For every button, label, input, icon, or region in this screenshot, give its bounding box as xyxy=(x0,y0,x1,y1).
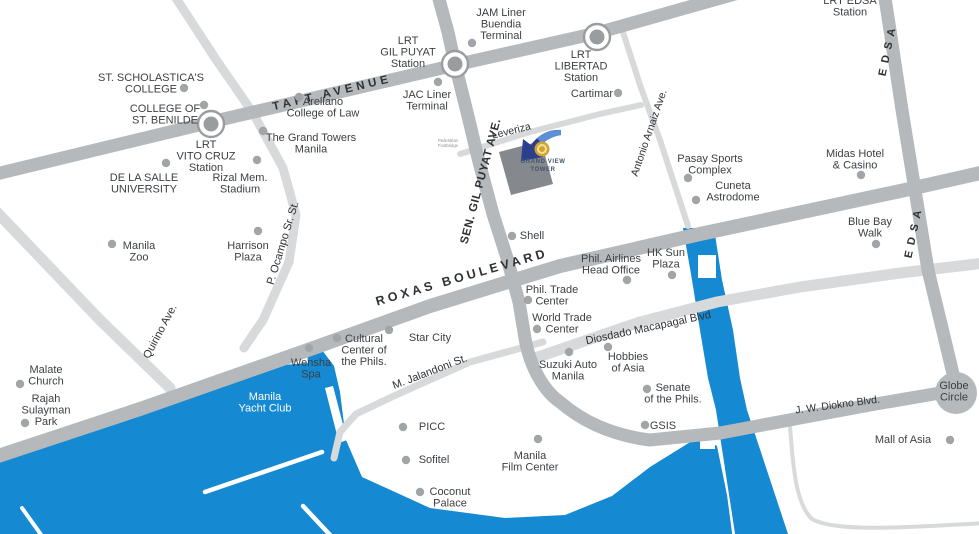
star-city-dot xyxy=(385,326,393,334)
hobbies-of-asia-dot xyxy=(604,343,612,351)
poi-gsis: GSIS xyxy=(641,420,676,432)
manila-zoo-dot xyxy=(108,240,116,248)
hobbies-of-asia-label: Hobbiesof Asia xyxy=(608,351,649,375)
lrt-libertad-station-label: LRTLIBERTADStation xyxy=(555,49,608,84)
poi-midas-hotel-casino: Midas Hotel& Casino xyxy=(826,148,884,179)
road-label-m-jalandoni-st: M. Jalandoni St. xyxy=(391,352,469,391)
cartimar-dot xyxy=(614,89,622,97)
poi-hobbies-of-asia: Hobbiesof Asia xyxy=(604,343,649,375)
manila-film-center-label: ManilaFilm Center xyxy=(502,450,559,474)
poi-harrison-plaza: HarrisonPlaza xyxy=(227,227,269,264)
poi-globe-circle: GlobeCircle xyxy=(939,380,968,404)
picc-label: PICC xyxy=(419,421,445,433)
college-of-st-benilde-label: COLLEGE OFST. BENILDE xyxy=(130,103,201,127)
rizal-mem-stadium-label: Rizal Mem.Stadium xyxy=(212,172,267,196)
channel-notch xyxy=(698,255,716,278)
gsis-dot xyxy=(641,421,649,429)
poi-hk-sun-plaza: HK SunPlaza xyxy=(647,247,685,279)
phil-trade-center-label: Phil. TradeCenter xyxy=(526,284,579,308)
poi-lrt-edsa-station: LRT EDSAStation xyxy=(823,0,877,19)
poi-manila-zoo: ManilaZoo xyxy=(108,240,156,264)
poi-senate-of-the-phils: Senateof the Phils. xyxy=(643,382,702,406)
phil-airlines-head-office-dot xyxy=(623,276,631,284)
coconut-palace-label: CoconutPalace xyxy=(430,486,471,510)
poi-blue-bay-walk: Blue BayWalk xyxy=(848,216,893,248)
blue-bay-walk-dot xyxy=(872,240,880,248)
pedestrian-footbridge-note-label: PedestrianFootbridge xyxy=(438,138,459,148)
sofitel-label: Sofitel xyxy=(419,454,450,466)
st-scholasticas-college-dot xyxy=(180,84,188,92)
sofitel-dot xyxy=(402,456,410,464)
poi-star-city: Star City xyxy=(385,326,452,344)
picc-dot xyxy=(399,423,407,431)
poi-rajah-sulayman-park: RajahSulaymanPark xyxy=(21,393,71,428)
cartimar-label: Cartimar xyxy=(571,88,614,100)
tower-gold-seal-icon xyxy=(535,142,550,157)
poi-lrt-vito-cruz-station: LRTVITO CRUZStation xyxy=(176,139,235,174)
de-la-salle-university-label: DE LA SALLEUNIVERSITY xyxy=(110,172,179,196)
midas-hotel-casino-dot xyxy=(857,171,865,179)
world-trade-center-label: World TradeCenter xyxy=(532,312,592,336)
vicinity-map-page: TAFT AVENUESEN. GIL PUYAT AVE.ROXAS BOUL… xyxy=(0,0,979,534)
jam-liner-buendia-terminal-label: JAM LinerBuendiaTerminal xyxy=(476,7,526,42)
shell-label: Shell xyxy=(520,230,544,242)
poi-shell: Shell xyxy=(508,230,544,242)
wensha-spa-dot xyxy=(305,344,313,352)
rajah-sulayman-park-dot xyxy=(21,419,29,427)
road-label-quirino-ave: Quirino Ave. xyxy=(141,302,180,360)
major-roads-layer xyxy=(0,0,979,458)
poi-college-of-st-benilde: COLLEGE OFST. BENILDE xyxy=(130,101,208,127)
poi-jac-liner-terminal: JAC LinerTerminal xyxy=(403,78,452,113)
road-quirino xyxy=(0,207,170,388)
cultural-center-of-the-phils-label: CulturalCenter ofthe Phils. xyxy=(341,333,387,368)
shell-dot xyxy=(508,232,516,240)
harrison-plaza-dot xyxy=(254,227,262,235)
st-scholasticas-college-label: ST. SCHOLASTICA'SCOLLEGE xyxy=(98,72,204,96)
vicinity-map: TAFT AVENUESEN. GIL PUYAT AVE.ROXAS BOUL… xyxy=(0,0,979,534)
poi-pedestrian-footbridge-note: PedestrianFootbridge xyxy=(438,138,459,148)
world-trade-center-dot xyxy=(533,325,541,333)
de-la-salle-university-dot xyxy=(162,159,170,167)
poi-lrt-libertad-station: LRTLIBERTADStation xyxy=(555,49,608,84)
manila-film-center-dot xyxy=(534,435,542,443)
midas-hotel-casino-label: Midas Hotel& Casino xyxy=(826,148,884,172)
manila-zoo-label: ManilaZoo xyxy=(123,240,156,264)
poi-phil-airlines-head-office: Phil. AirlinesHead Office xyxy=(581,253,641,284)
harrison-plaza-label: HarrisonPlaza xyxy=(227,240,269,264)
poi-world-trade-center: World TradeCenter xyxy=(532,312,592,336)
jac-liner-terminal-label: JAC LinerTerminal xyxy=(403,89,452,113)
pasay-sports-complex-label: Pasay SportsComplex xyxy=(677,153,743,177)
lrt-gil-puyat-marker xyxy=(442,51,468,77)
hk-sun-plaza-label: HK SunPlaza xyxy=(647,247,685,271)
poi-jam-liner-buendia-terminal: JAM LinerBuendiaTerminal xyxy=(468,7,526,47)
malate-church-label: MalateChurch xyxy=(28,364,63,388)
lrt-edsa-station-label: LRT EDSAStation xyxy=(823,0,877,19)
hk-sun-plaza-dot xyxy=(668,271,676,279)
phil-airlines-head-office-label: Phil. AirlinesHead Office xyxy=(581,253,641,277)
cultural-center-of-the-phils-dot xyxy=(333,334,341,342)
lrt-libertad-marker xyxy=(584,24,610,50)
suzuki-auto-manila-label: Suzuki AutoManila xyxy=(539,359,597,383)
mall-of-asia-dot xyxy=(946,436,954,444)
poi-pasay-sports-complex: Pasay SportsComplex xyxy=(677,153,743,182)
jac-liner-terminal-dot xyxy=(434,78,442,86)
suzuki-auto-manila-dot xyxy=(565,348,573,356)
poi-sofitel: Sofitel xyxy=(402,454,449,466)
poi-st-scholasticas-college: ST. SCHOLASTICA'SCOLLEGE xyxy=(98,72,204,96)
star-city-label: Star City xyxy=(409,332,452,344)
gsis-label: GSIS xyxy=(650,420,676,432)
poi-phil-trade-center: Phil. TradeCenter xyxy=(524,284,578,308)
manila-bay-water xyxy=(0,350,733,534)
phil-trade-center-dot xyxy=(524,296,532,304)
poi-de-la-salle-university: DE LA SALLEUNIVERSITY xyxy=(110,159,179,196)
lrt-vito-cruz-station-label: LRTVITO CRUZStation xyxy=(176,139,235,174)
college-of-st-benilde-dot xyxy=(200,101,208,109)
poi-picc: PICC xyxy=(399,421,445,433)
poi-cartimar: Cartimar xyxy=(571,88,622,100)
lrt-vito-cruz-marker xyxy=(198,111,224,137)
coconut-palace-dot xyxy=(416,488,424,496)
mall-of-asia-label: Mall of Asia xyxy=(875,434,932,446)
poi-mall-of-asia: Mall of Asia xyxy=(875,434,954,446)
poi-malate-church: MalateChurch xyxy=(16,364,64,388)
cuneta-astrodome-label: CunetaAstrodome xyxy=(706,180,759,204)
globe-circle-label: GlobeCircle xyxy=(939,380,968,404)
poi-cultural-center-of-the-phils: CulturalCenter ofthe Phils. xyxy=(333,333,388,368)
blue-bay-walk-label: Blue BayWalk xyxy=(848,216,893,240)
poi-manila-film-center: ManilaFilm Center xyxy=(502,435,559,474)
senate-of-the-phils-dot xyxy=(643,385,651,393)
malate-church-dot xyxy=(16,380,24,388)
cuneta-astrodome-dot xyxy=(692,196,700,204)
jam-liner-buendia-terminal-dot xyxy=(468,39,476,47)
poi-cuneta-astrodome: CunetaAstrodome xyxy=(692,180,760,204)
senate-of-the-phils-label: Senateof the Phils. xyxy=(644,382,701,406)
rizal-mem-stadium-dot xyxy=(253,156,261,164)
the-grand-towers-manila-label: The Grand TowersManila xyxy=(266,132,357,156)
